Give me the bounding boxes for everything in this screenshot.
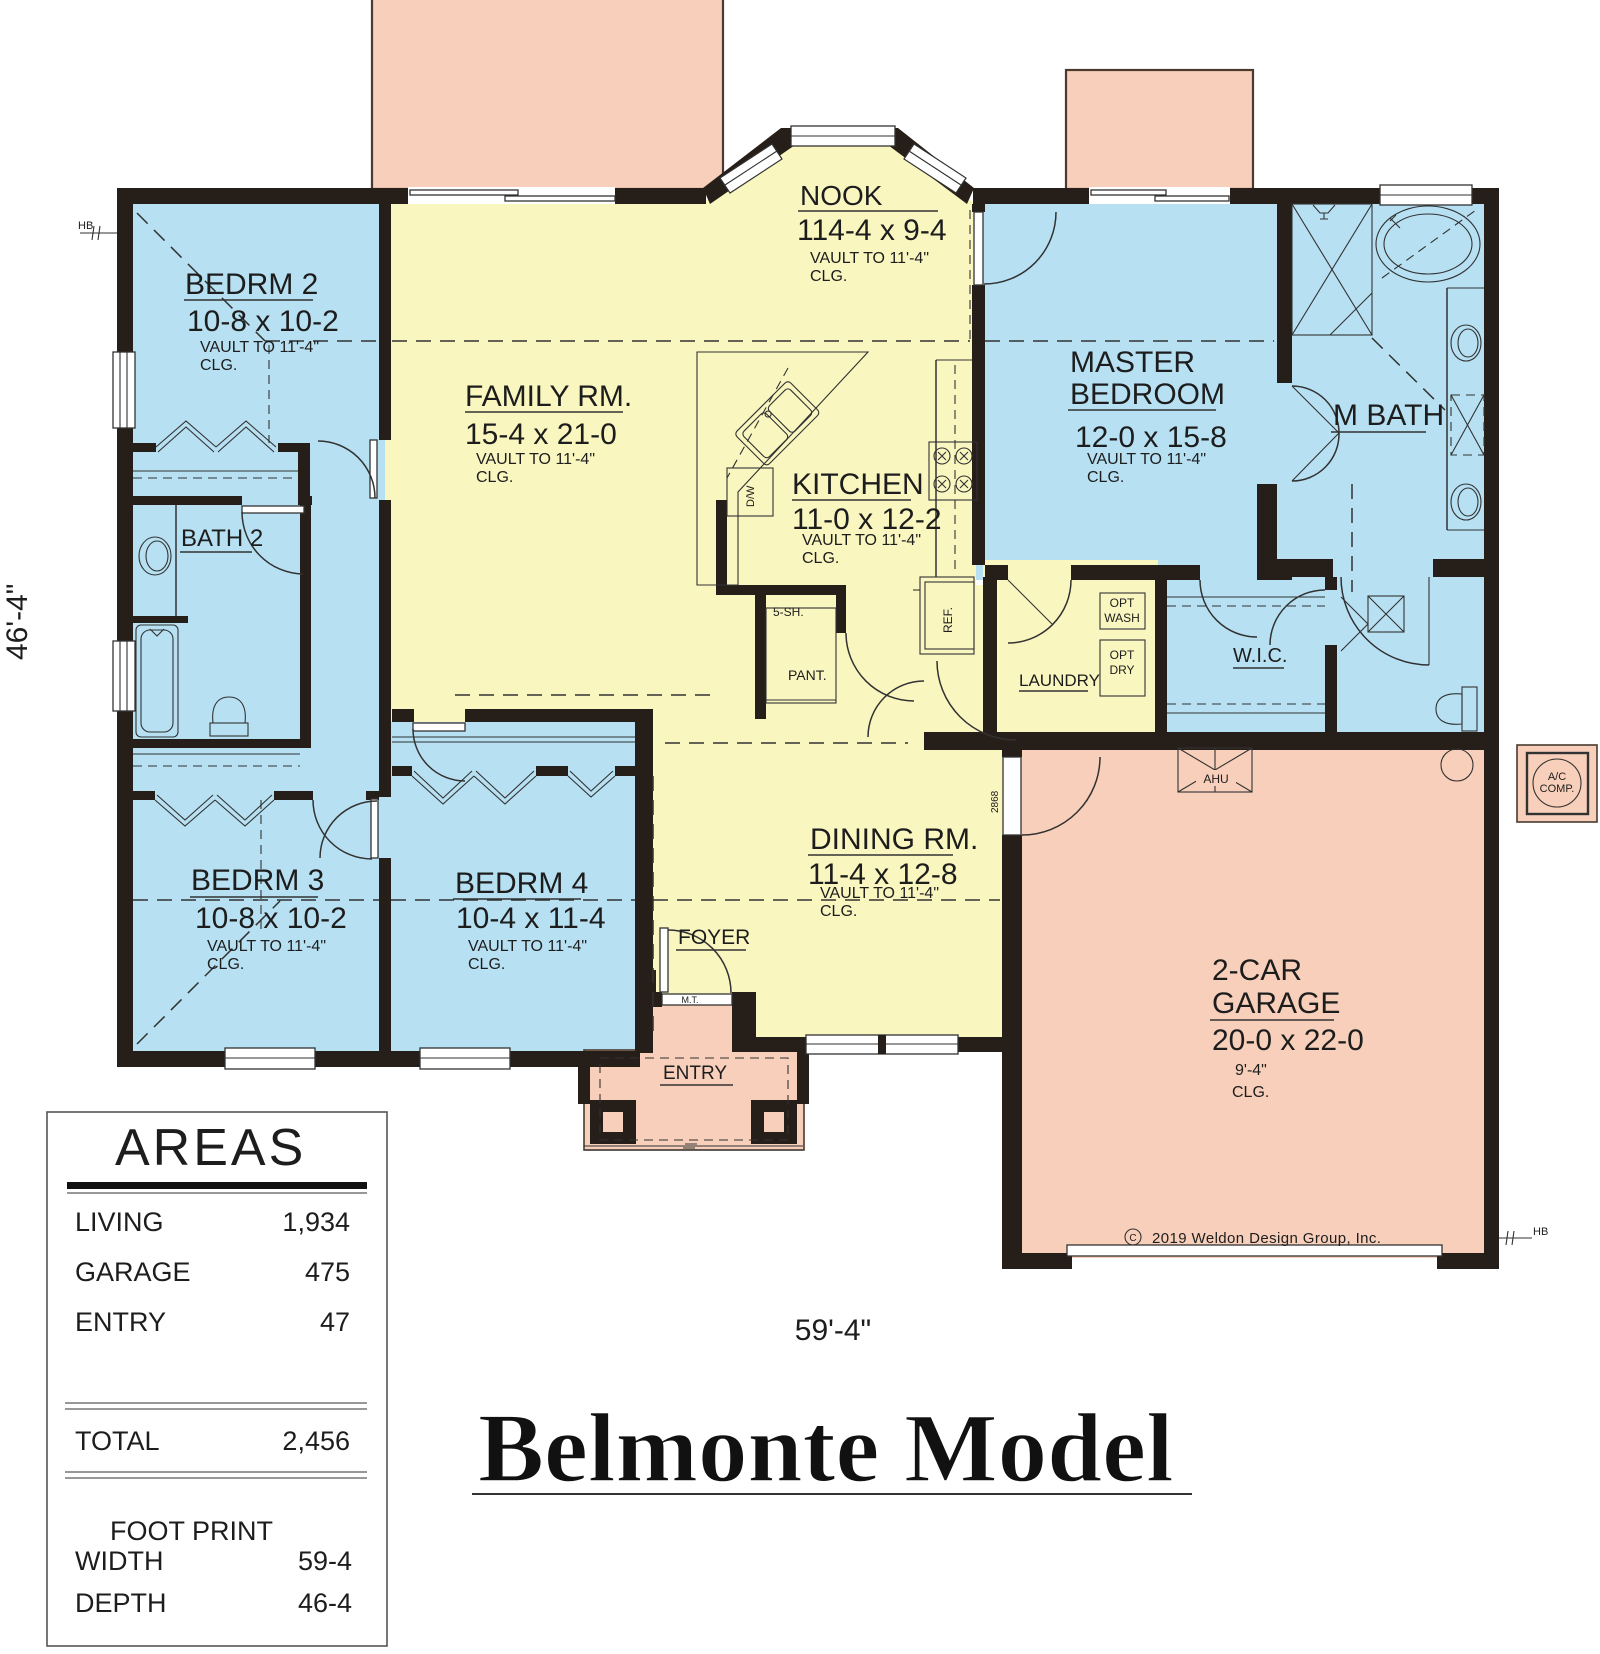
svg-text:AHU: AHU <box>1203 772 1228 786</box>
svg-text:DRY: DRY <box>1109 663 1134 677</box>
svg-text:VAULT TO 11'-4": VAULT TO 11'-4" <box>207 938 326 955</box>
svg-text:VAULT TO 11'-4": VAULT TO 11'-4" <box>820 885 939 902</box>
svg-text:HB: HB <box>1533 1226 1548 1238</box>
svg-text:Belmonte Model: Belmonte Model <box>478 1394 1174 1503</box>
svg-text:LAUNDRY: LAUNDRY <box>1019 671 1100 690</box>
svg-text:FOYER: FOYER <box>678 926 750 949</box>
svg-text:12-0 x 15-8: 12-0 x 15-8 <box>1075 421 1227 454</box>
svg-text:20-0 x 22-0: 20-0 x 22-0 <box>1212 1024 1364 1057</box>
svg-text:1,934: 1,934 <box>282 1207 350 1237</box>
svg-text:FOOT PRINT: FOOT PRINT <box>110 1516 273 1546</box>
svg-text:VAULT TO 11'-4": VAULT TO 11'-4" <box>802 532 921 549</box>
svg-text:CLG.: CLG. <box>820 903 857 920</box>
svg-text:46'-4": 46'-4" <box>1 584 34 660</box>
svg-text:M BATH: M BATH <box>1333 399 1444 432</box>
svg-text:VAULT TO 11'-4": VAULT TO 11'-4" <box>810 250 929 267</box>
svg-text:2-CAR: 2-CAR <box>1212 954 1302 987</box>
svg-text:AREAS: AREAS <box>115 1119 306 1177</box>
svg-text:WIDTH: WIDTH <box>75 1546 163 1576</box>
svg-text:MASTER: MASTER <box>1070 346 1195 379</box>
svg-text:OPT: OPT <box>1110 648 1135 662</box>
svg-text:BEDRM 2: BEDRM 2 <box>185 268 318 301</box>
svg-text:VAULT TO 11'-4": VAULT TO 11'-4" <box>476 451 595 468</box>
svg-text:C: C <box>1129 1233 1136 1244</box>
svg-text:CLG.: CLG. <box>1232 1084 1269 1101</box>
svg-text:475: 475 <box>305 1257 350 1287</box>
svg-text:10-8 x 10-2: 10-8 x 10-2 <box>187 305 339 338</box>
svg-text:CLG.: CLG. <box>200 357 237 374</box>
svg-text:10-8 x 10-2: 10-8 x 10-2 <box>195 902 347 935</box>
svg-text:BEDRM 3: BEDRM 3 <box>191 864 324 897</box>
svg-text:15-4 x 21-0: 15-4 x 21-0 <box>465 418 617 451</box>
svg-text:CLG.: CLG. <box>207 956 244 973</box>
svg-text:NOOK: NOOK <box>800 180 883 211</box>
svg-text:CLG.: CLG. <box>802 550 839 567</box>
svg-text:5-SH.: 5-SH. <box>773 605 804 619</box>
svg-text:VAULT TO 11'-4": VAULT TO 11'-4" <box>468 938 587 955</box>
svg-text:BEDRM 4: BEDRM 4 <box>455 867 588 900</box>
svg-text:ENTRY: ENTRY <box>663 1063 727 1084</box>
svg-text:HB: HB <box>78 220 93 232</box>
svg-text:REF.: REF. <box>941 607 955 633</box>
svg-text:D/W: D/W <box>745 485 757 507</box>
svg-text:GARAGE: GARAGE <box>75 1257 191 1287</box>
svg-text:W.I.C.: W.I.C. <box>1233 645 1287 667</box>
svg-text:2868: 2868 <box>990 790 1001 813</box>
svg-text:CLG.: CLG. <box>810 268 847 285</box>
svg-text:10-4 x 11-4: 10-4 x 11-4 <box>456 902 606 935</box>
svg-text:PANT.: PANT. <box>788 667 827 683</box>
svg-text:VAULT TO 11'-4": VAULT TO 11'-4" <box>1087 451 1206 468</box>
svg-text:KITCHEN: KITCHEN <box>792 468 924 501</box>
svg-text:COMP.: COMP. <box>1540 783 1575 795</box>
svg-text:BATH 2: BATH 2 <box>181 525 263 552</box>
svg-text:BEDROOM: BEDROOM <box>1070 378 1225 411</box>
svg-text:ENTRY: ENTRY <box>75 1307 166 1337</box>
svg-text:CLG.: CLG. <box>468 956 505 973</box>
svg-text:47: 47 <box>320 1307 350 1337</box>
svg-text:DEPTH: DEPTH <box>75 1588 167 1618</box>
svg-text:OPT: OPT <box>1110 596 1135 610</box>
svg-text:TOTAL: TOTAL <box>75 1426 160 1456</box>
svg-text:VAULT TO 11'-4": VAULT TO 11'-4" <box>200 339 319 356</box>
svg-text:9'-4": 9'-4" <box>1235 1062 1267 1079</box>
svg-text:59'-4": 59'-4" <box>795 1314 871 1347</box>
svg-text:CLG.: CLG. <box>1087 469 1124 486</box>
svg-text:LIVING: LIVING <box>75 1207 164 1237</box>
svg-text:GARAGE: GARAGE <box>1212 987 1340 1020</box>
svg-text:2,456: 2,456 <box>282 1426 350 1456</box>
svg-text:2019 Weldon Design Group, Inc.: 2019 Weldon Design Group, Inc. <box>1152 1230 1381 1247</box>
svg-text:59-4: 59-4 <box>298 1546 352 1576</box>
svg-text:WASH: WASH <box>1104 611 1140 625</box>
svg-text:DINING RM.: DINING RM. <box>810 823 978 856</box>
svg-text:M.T.: M.T. <box>682 995 699 1005</box>
svg-text:A/C: A/C <box>1548 771 1566 783</box>
svg-text:114-4 x 9-4: 114-4 x 9-4 <box>797 214 947 247</box>
svg-text:FAMILY RM.: FAMILY RM. <box>465 380 632 413</box>
svg-text:46-4: 46-4 <box>298 1588 352 1618</box>
svg-text:CLG.: CLG. <box>476 469 513 486</box>
